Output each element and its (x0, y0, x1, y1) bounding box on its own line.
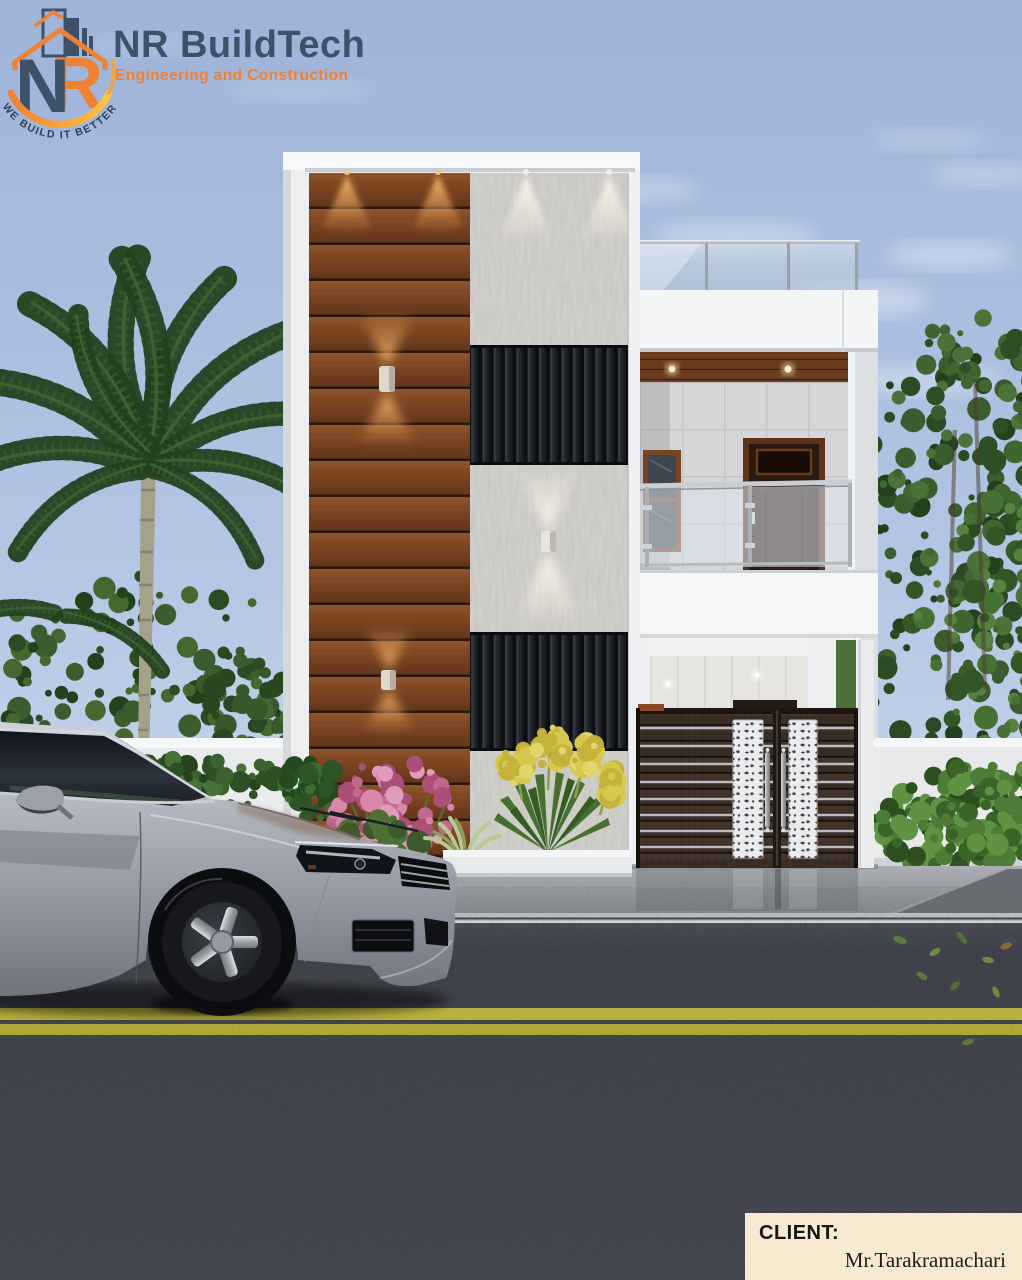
client-info-box: CLIENT: Mr.Tarakramachari (745, 1213, 1022, 1280)
gate-white-panel-right (789, 720, 817, 858)
car-front-wheel (148, 868, 296, 1016)
logo-company-name: NR BuildTech (113, 24, 365, 66)
roof-glass-railing (628, 240, 860, 291)
client-label: CLIENT: (759, 1222, 1010, 1245)
balcony-glass-railing (640, 482, 852, 567)
floor-slab (628, 570, 878, 638)
render-scene: R N WE BUILD IT BETTER NR BuildTech Engi… (0, 0, 1022, 1280)
logo-tagline: Engineering and Construction (115, 67, 348, 84)
emblem-letter-n: N (15, 44, 70, 129)
parapet (628, 290, 878, 352)
balcony (640, 352, 852, 570)
client-name: Mr.Tarakramachari (759, 1248, 1010, 1273)
porch (628, 638, 860, 708)
architectural-render-page: R N WE BUILD IT BETTER NR BuildTech Engi… (0, 0, 1022, 1280)
louver-panel-upper (470, 345, 628, 465)
white-planter-box (443, 850, 632, 877)
gate-white-panel-left (733, 720, 763, 858)
